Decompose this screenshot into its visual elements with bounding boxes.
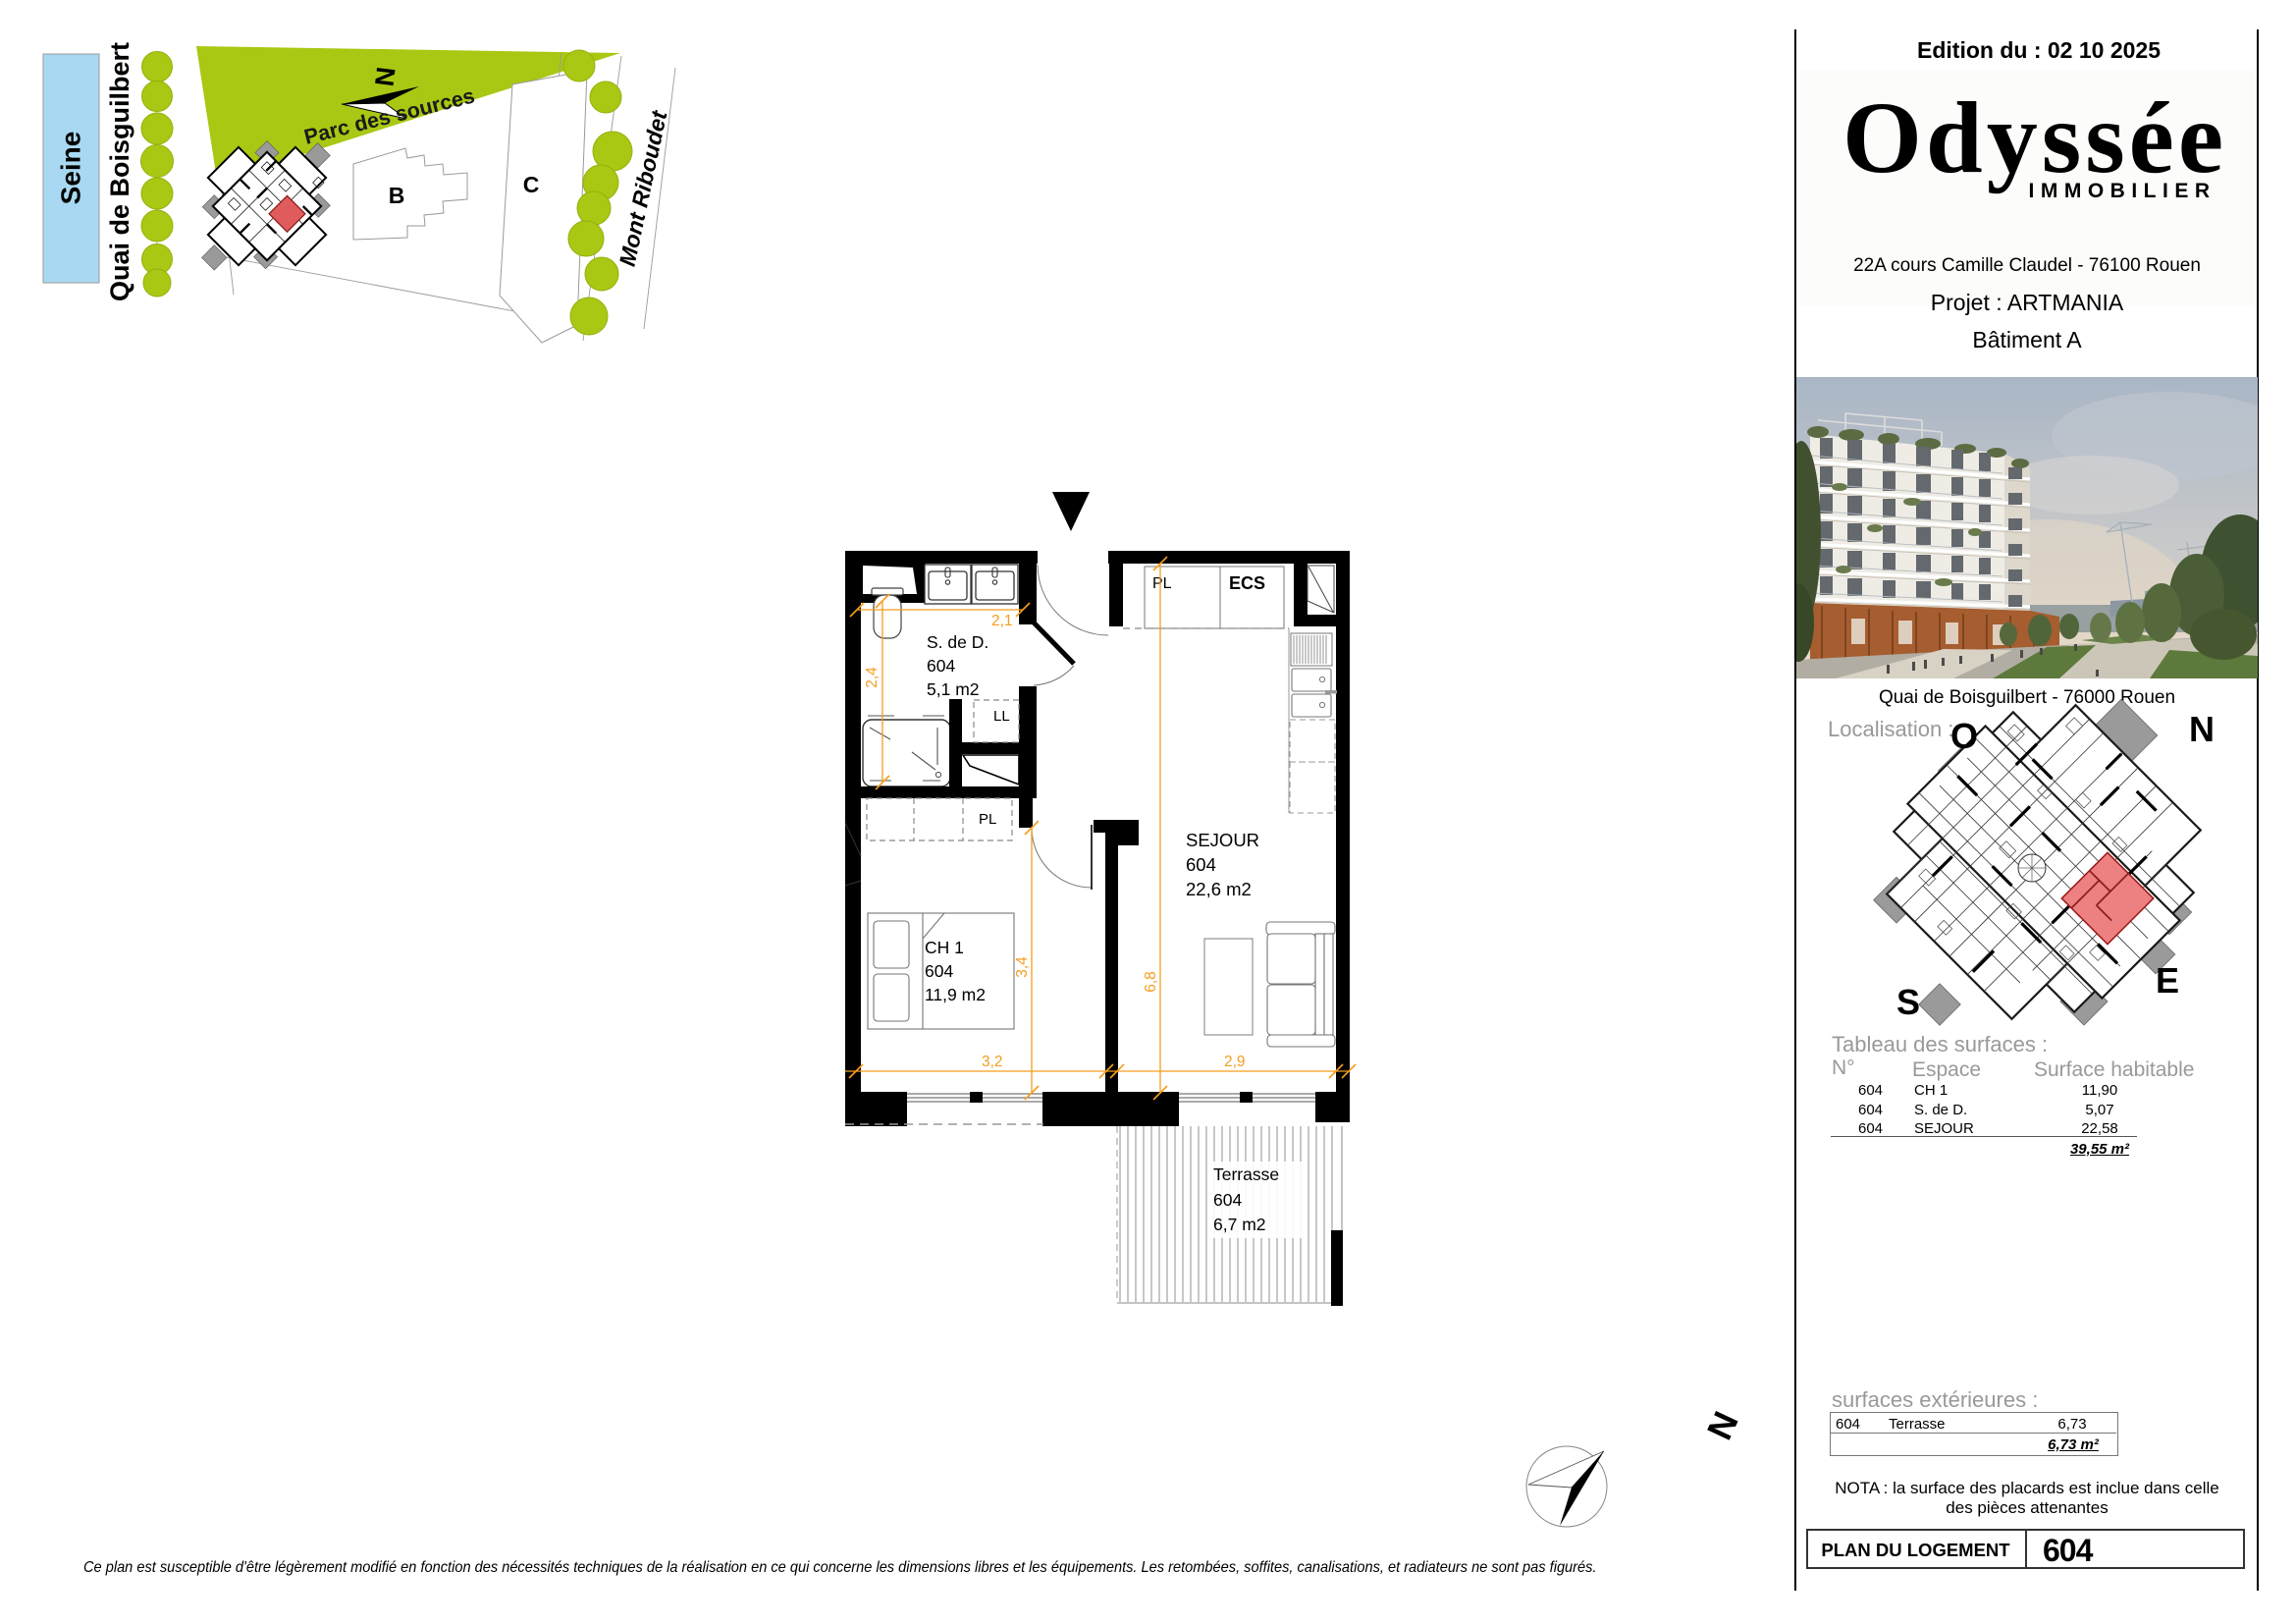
svg-text:N: N xyxy=(2189,709,2215,749)
svg-text:B: B xyxy=(389,183,405,208)
svg-text:S: S xyxy=(1896,982,1920,1022)
svg-text:N: N xyxy=(1699,1406,1746,1446)
svg-text:604: 604 xyxy=(925,961,953,981)
svg-text:E: E xyxy=(2156,960,2179,1001)
svg-text:604: 604 xyxy=(927,656,955,676)
svg-text:SEJOUR: SEJOUR xyxy=(1186,830,1259,850)
svg-text:6,7 m2: 6,7 m2 xyxy=(1213,1215,1266,1234)
svg-text:3,4: 3,4 xyxy=(1014,956,1031,978)
svg-text:C: C xyxy=(523,172,540,197)
svg-text:604: 604 xyxy=(1186,854,1216,875)
svg-text:2,1: 2,1 xyxy=(991,613,1013,629)
svg-text:22,6 m2: 22,6 m2 xyxy=(1186,879,1252,899)
svg-text:604: 604 xyxy=(1213,1190,1242,1210)
svg-text:6,8: 6,8 xyxy=(1143,971,1159,993)
svg-text:2,9: 2,9 xyxy=(1224,1054,1246,1070)
svg-text:11,9 m2: 11,9 m2 xyxy=(925,985,986,1004)
svg-text:PL: PL xyxy=(1152,575,1172,592)
svg-text:3,2: 3,2 xyxy=(982,1054,1003,1070)
svg-text:LL: LL xyxy=(993,708,1010,725)
svg-text:ECS: ECS xyxy=(1229,573,1265,593)
svg-text:PL: PL xyxy=(979,811,996,828)
svg-text:2,4: 2,4 xyxy=(864,667,881,688)
svg-text:Terrasse: Terrasse xyxy=(1213,1164,1279,1184)
svg-text:Seine: Seine xyxy=(56,132,86,205)
svg-text:Quai de Boisguilbert: Quai de Boisguilbert xyxy=(105,42,134,301)
svg-text:N: N xyxy=(369,65,400,87)
svg-text:Mont Riboudet: Mont Riboudet xyxy=(614,107,672,268)
svg-text:CH 1: CH 1 xyxy=(925,938,964,957)
svg-text:5,1 m2: 5,1 m2 xyxy=(927,679,980,699)
svg-text:O: O xyxy=(1950,716,1978,756)
svg-text:S. de D.: S. de D. xyxy=(927,632,988,652)
